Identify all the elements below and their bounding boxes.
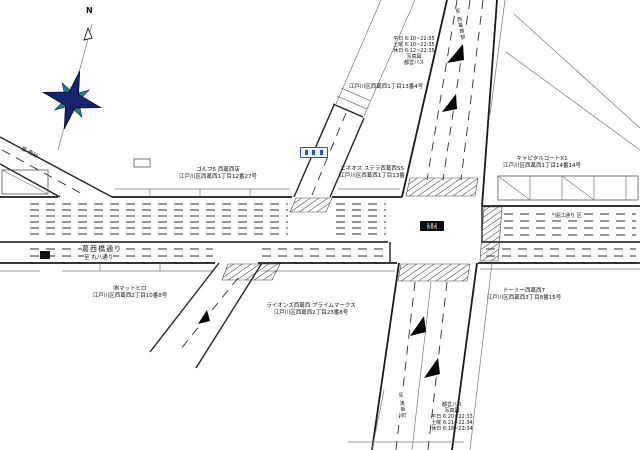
landmark-eneos: エネオス ステラ西葛西SS 江戸川区西葛西1丁目13番	[334, 166, 410, 179]
compass-north-label: N	[86, 6, 93, 15]
intersection-name-text: 西葛西	[427, 225, 438, 229]
northeast-buildings	[498, 14, 640, 200]
compass-rose-icon	[35, 24, 108, 150]
landmark-name: ドーミー西葛西7	[474, 288, 574, 295]
north-branch-road	[402, 0, 505, 206]
northwest-stub-road	[290, 0, 415, 212]
landmark-address: 江戸川区西葛西1丁目12番27号	[164, 174, 272, 181]
landmark-address-13-4: 江戸川区西葛西1丁目13番4号	[334, 84, 438, 91]
schedule-operator: 都営バス	[391, 61, 437, 67]
east-side-street-label: 堀江通り 区	[554, 213, 583, 219]
landmark-name: キャピタルコートX1	[496, 156, 588, 163]
intersection-name-sign: 西葛西	[420, 221, 444, 231]
landmark-address: 江戸川区西葛西1丁目14番14号	[496, 163, 588, 170]
landmark-name: ライオンズ西葛西 プライムマークス	[252, 303, 370, 310]
west-branch-road	[0, 137, 112, 197]
landmark-name: ゴルフ5 西葛西店	[164, 167, 272, 174]
landmark-capital-court: キャピタルコートX1 江戸川区西葛西1丁目14番14号	[496, 156, 588, 169]
east-crosswalk	[480, 207, 502, 261]
landmark-address: 江戸川区西葛西3丁目8番15号	[474, 295, 574, 302]
landmark-address: 江戸川区西葛西1丁目13番	[334, 173, 410, 180]
road-map-canvas: N 平日 6:10~22:35 土曜 6:10~22:35 休日 6:12~22…	[0, 0, 640, 450]
schedule-holiday: 休日 6:18~22:34	[426, 427, 478, 433]
landmark-address: 江戸川区西葛西1丁目13番4号	[334, 84, 438, 91]
bus-schedule-bottom: 都営バス 写真図 平日 6:20~22:33 土曜 6:21~22:34 休日 …	[426, 403, 478, 432]
bus-schedule-top: 平日 6:10~22:35 土曜 6:10~22:35 休日 6:12~22:3…	[391, 37, 437, 66]
landmark-name: エネオス ステラ西葛西SS	[334, 166, 410, 173]
landmark-address: 江戸川区西葛西2丁目10番8号	[84, 293, 176, 300]
landmark-dormy: ドーミー西葛西7 江戸川区西葛西3丁目8番15号	[474, 288, 574, 301]
landmark-lions: ライオンズ西葛西 プライムマークス 江戸川区西葛西2丁目23番8号	[252, 303, 370, 316]
main-road-destination: 至 丸八通り	[84, 253, 113, 261]
map-drawing	[0, 0, 640, 450]
landmark-matthiro: ㈱マットヒロ 江戸川区西葛西2丁目10番8号	[84, 286, 176, 299]
landmark-address: 江戸川区西葛西2丁目23番8号	[252, 310, 370, 317]
landmark-name: ㈱マットヒロ	[84, 286, 176, 293]
bus-stop-icon	[300, 147, 328, 158]
landmark-golf5: ゴルフ5 西葛西店 江戸川区西葛西1丁目12番27号	[164, 167, 272, 180]
